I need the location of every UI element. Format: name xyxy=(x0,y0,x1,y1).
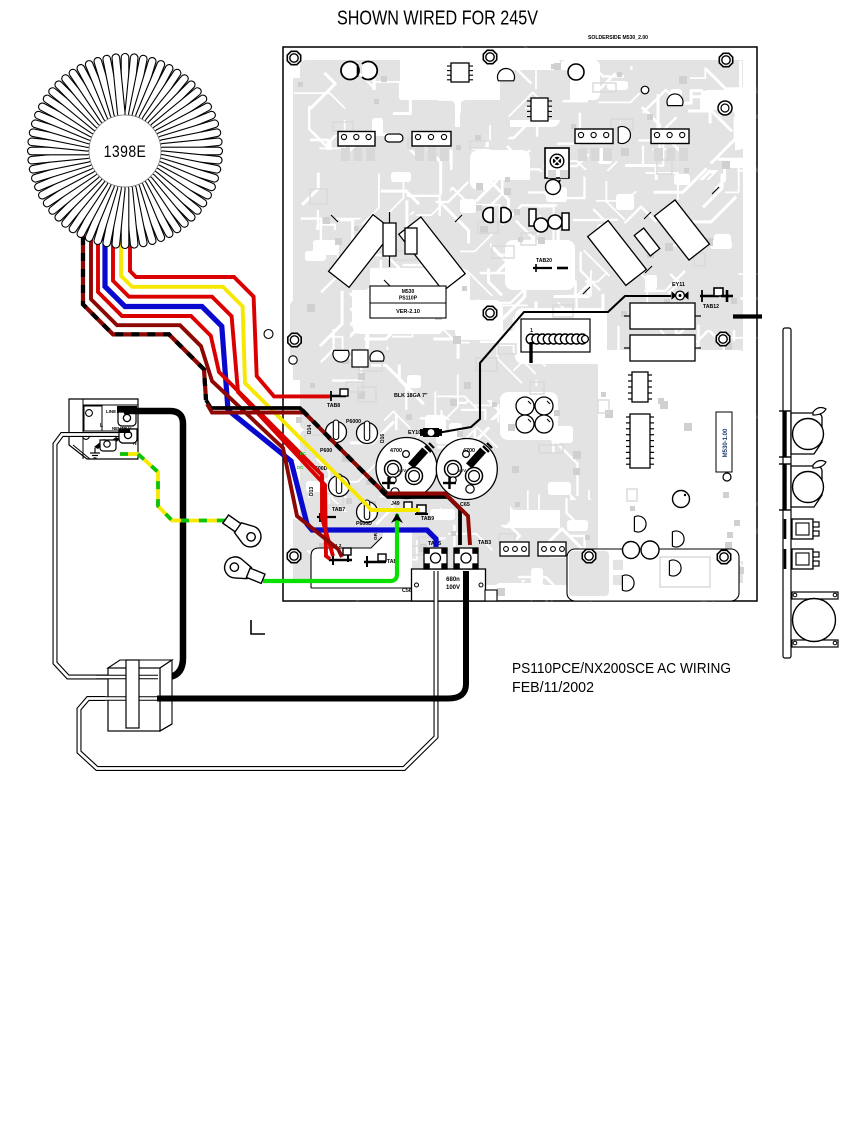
svg-text:GR: GR xyxy=(373,532,378,540)
svg-text:D13: D13 xyxy=(309,487,315,496)
svg-text:EY10: EY10 xyxy=(408,430,421,436)
svg-text:D14: D14 xyxy=(307,425,313,434)
svg-text:1: 1 xyxy=(530,328,533,334)
svg-text:P600: P600 xyxy=(320,448,332,454)
svg-text:LINE: LINE xyxy=(106,409,116,414)
svg-text:D16: D16 xyxy=(380,434,386,443)
svg-text:P6000: P6000 xyxy=(346,419,361,425)
svg-text:TAB9: TAB9 xyxy=(421,516,434,522)
svg-text:4700: 4700 xyxy=(390,448,402,454)
svg-text:100V: 100V xyxy=(446,585,460,591)
svg-text:680n: 680n xyxy=(446,577,460,583)
svg-text:BLK 18GA 7": BLK 18GA 7" xyxy=(394,393,428,399)
svg-text:TAB3: TAB3 xyxy=(478,540,491,546)
svg-text:P600D: P600D xyxy=(356,521,372,527)
svg-text:C56: C56 xyxy=(402,588,412,594)
svg-text:4700: 4700 xyxy=(463,448,475,454)
svg-text:FEB/11/2002: FEB/11/2002 xyxy=(512,680,594,696)
svg-text:M530-1.00: M530-1.00 xyxy=(723,428,729,457)
svg-text:TAB8: TAB8 xyxy=(327,403,340,409)
svg-text:DC: DC xyxy=(300,451,307,456)
svg-text:TAB12: TAB12 xyxy=(703,304,719,310)
svg-text:L: L xyxy=(100,423,103,429)
svg-text:DC: DC xyxy=(297,465,304,470)
svg-text:J49: J49 xyxy=(391,501,400,507)
svg-text:SOLDERSIDE M530_2.00: SOLDERSIDE M530_2.00 xyxy=(588,35,648,41)
svg-text:EY11: EY11 xyxy=(672,282,685,288)
svg-text:TAB7: TAB7 xyxy=(332,507,345,513)
svg-text:M530: M530 xyxy=(402,289,415,295)
svg-text:PS110P: PS110P xyxy=(399,296,418,302)
svg-text:50V: 50V xyxy=(398,468,407,473)
svg-text:PS110PCE/NX200SCE AC WIRING: PS110PCE/NX200SCE AC WIRING xyxy=(512,661,731,677)
svg-text:TAB20: TAB20 xyxy=(536,258,552,264)
svg-text:SHOWN WIRED FOR 245V: SHOWN WIRED FOR 245V xyxy=(337,6,538,29)
svg-text:50V: 50V xyxy=(458,468,467,473)
svg-text:VER-2.10: VER-2.10 xyxy=(396,309,420,315)
svg-text:1398E: 1398E xyxy=(104,143,147,161)
